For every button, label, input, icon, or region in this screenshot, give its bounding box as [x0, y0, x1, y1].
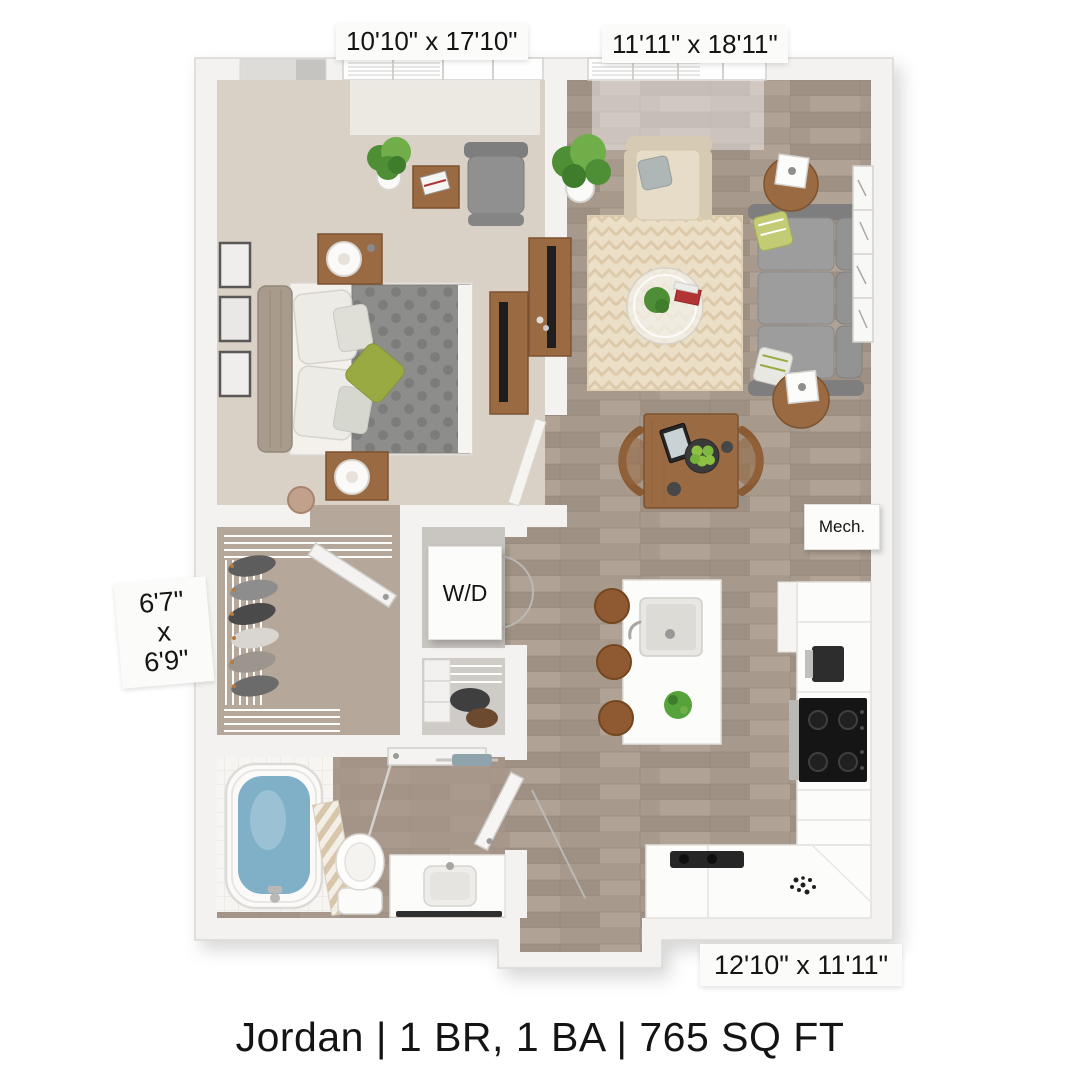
living-tv-console	[529, 238, 571, 356]
living-armchair	[624, 136, 712, 220]
bedroom-tv	[499, 302, 508, 402]
island-plant	[664, 691, 692, 719]
nightstand-top	[318, 234, 382, 284]
wd-opening	[505, 537, 527, 645]
nightstand-bottom	[326, 452, 388, 500]
side-table-bottom	[773, 371, 829, 428]
wall-picture-frames	[220, 243, 250, 396]
vanity	[390, 855, 505, 917]
sofa	[748, 204, 864, 396]
kitchen-island	[623, 580, 721, 744]
bar-stool	[599, 701, 633, 735]
dining-area	[619, 414, 763, 508]
closet-dim-height: 6'9"	[121, 643, 211, 680]
gray-throw-pillow	[637, 155, 673, 191]
closet-dimensions-label: 6'7" x 6'9"	[114, 576, 215, 689]
coffee-maker	[805, 646, 844, 682]
living-tv	[547, 246, 556, 348]
bedroom-side-table	[413, 166, 459, 208]
bathtub	[226, 764, 322, 908]
floorplan-stage: 10'10" x 17'10" 11'11" x 18'11" 12'10" x…	[0, 0, 1080, 1080]
dried-floral	[288, 487, 314, 513]
stovetop-tray	[670, 851, 744, 868]
coffee-table	[627, 268, 703, 344]
bedroom-window	[343, 58, 543, 135]
kitchen-bottom-counter	[646, 845, 871, 918]
entry-floor	[520, 918, 642, 952]
bed	[258, 283, 472, 455]
range-stove	[789, 698, 867, 782]
sofa-pillow-top	[752, 210, 793, 251]
bedroom-tv-console	[490, 292, 528, 414]
bar-stool	[597, 645, 631, 679]
kitchen-dimensions-label: 12'10" x 11'11"	[700, 944, 902, 986]
mechanical-room-tag: Mech.	[804, 504, 880, 550]
bedroom-dimensions-label: 10'10" x 17'10"	[336, 23, 528, 60]
dining-table	[644, 414, 738, 508]
bar-stool	[595, 589, 629, 623]
bedroom-doorway-wood	[545, 415, 567, 505]
plan-caption: Jordan | 1 BR, 1 BA | 765 SQ FT	[0, 1014, 1080, 1061]
wall-art-panels	[853, 166, 873, 342]
toilet	[336, 834, 384, 914]
washer-dryer-tag: W/D	[428, 546, 502, 640]
mirror	[396, 911, 502, 917]
closet-doorway-floor	[310, 505, 400, 527]
bedroom-armchair	[464, 142, 528, 226]
floorplan-drawing	[0, 0, 1080, 1080]
living-room-dimensions-label: 11'11" x 18'11"	[602, 26, 788, 63]
